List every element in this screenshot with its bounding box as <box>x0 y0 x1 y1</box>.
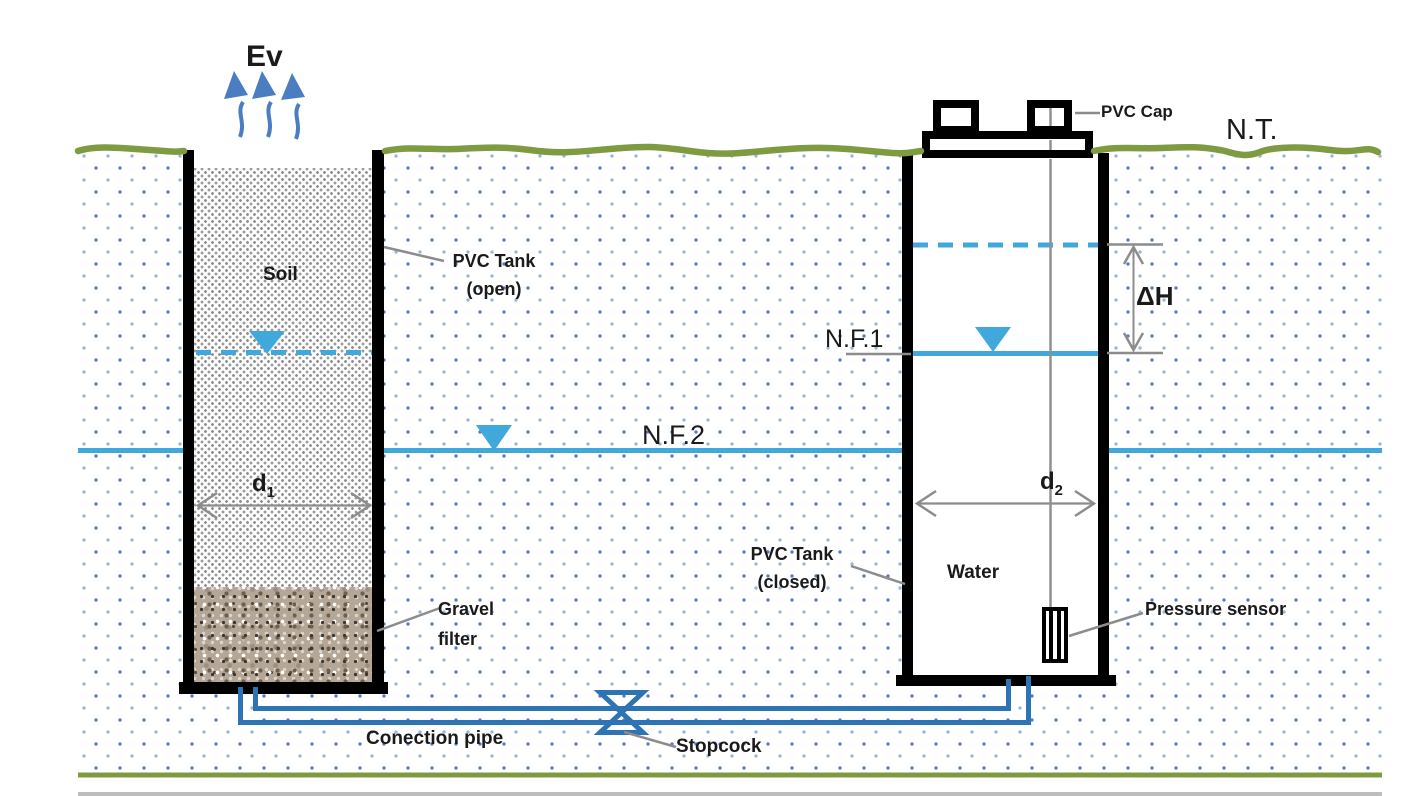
gravel-filter-texture <box>194 587 372 682</box>
nf2-label: N.F.2 <box>642 420 705 451</box>
evaporation-arrow-head <box>224 71 248 99</box>
pvc-cap-port-left <box>933 100 979 134</box>
pvc-tank-closed-label: PVC Tank (closed) <box>742 540 842 596</box>
pvc-cap-plate <box>922 131 1093 158</box>
pvc-cap-port-right <box>1027 100 1072 134</box>
stopcock-label: Stopcock <box>676 736 762 758</box>
evaporation-arrow-stem <box>268 102 271 137</box>
sensor-hatch-bar <box>1049 611 1053 659</box>
evaporation-arrow-head <box>281 73 305 100</box>
right-tank-bottom <box>896 675 1116 686</box>
pvc-cap-label: PVC Cap <box>1101 102 1173 122</box>
evaporation-label: Ev <box>246 40 283 74</box>
nf1-label: N.F.1 <box>825 325 883 354</box>
left-tank-headspace <box>194 150 372 168</box>
pvc-tank-open-label: PVC Tank (open) <box>444 247 544 303</box>
evaporation-arrow-stem <box>240 102 243 137</box>
pressure-sensor-label: Pressure sensor <box>1145 599 1286 620</box>
soil-texture <box>194 168 372 587</box>
d2-label: d2 <box>1040 468 1063 499</box>
evaporation-arrow-stem <box>296 104 299 139</box>
connection-pipe-label: Conection pipe <box>366 728 503 750</box>
sensor-hatch-bar <box>1057 611 1061 659</box>
gravel-filter-label: Gravel filter <box>438 594 516 654</box>
diagram-canvas: Ev Soil PVC Tank (open) Gravel filter d1… <box>0 0 1424 796</box>
evaporation-arrow-head <box>252 71 276 99</box>
soil-label: Soil <box>263 264 298 286</box>
water-label: Water <box>947 562 999 584</box>
right-pvc-tank-closed <box>902 153 1109 675</box>
pressure-sensor-icon <box>1042 607 1068 663</box>
terrain-label: N.T. <box>1226 114 1278 147</box>
delta-h-label: ΔH <box>1136 281 1173 312</box>
d1-label: d1 <box>252 470 275 501</box>
left-pvc-tank-open <box>183 150 384 682</box>
left-tank-bottom <box>179 682 388 694</box>
